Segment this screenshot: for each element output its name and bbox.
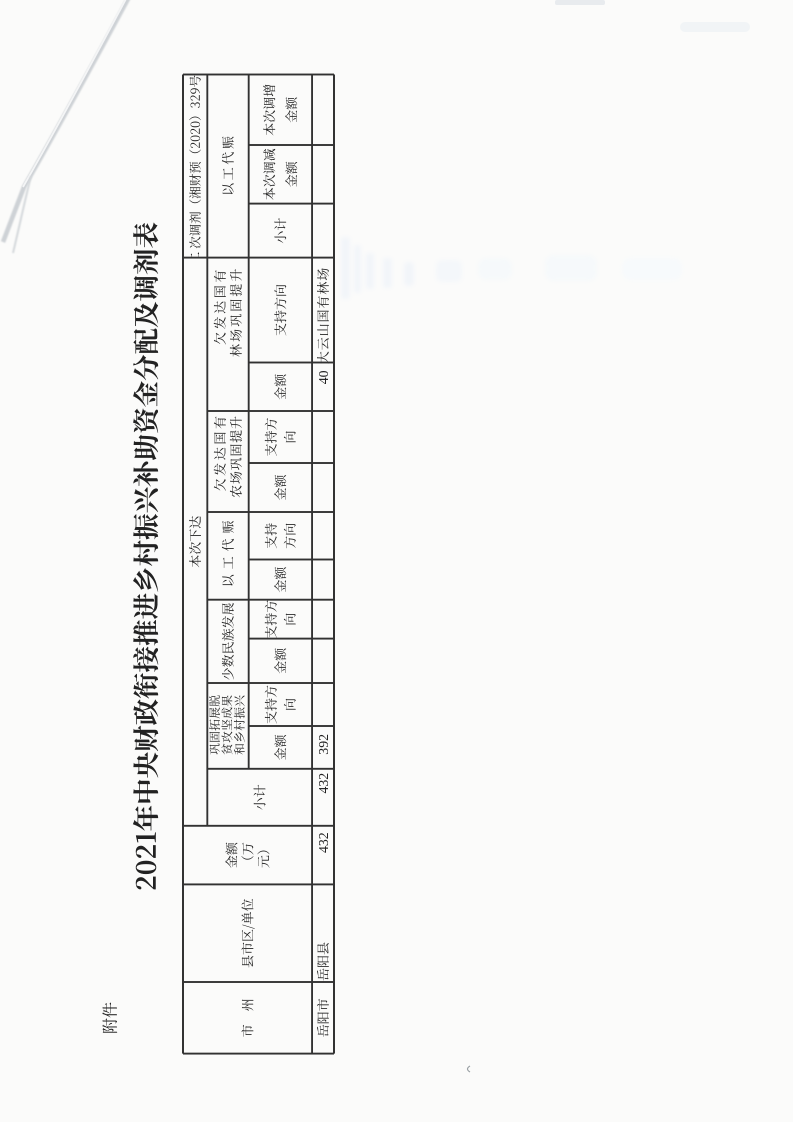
svg-text:40: 40 [316,370,331,384]
svg-text:432: 432 [316,773,331,794]
svg-text:392: 392 [316,734,331,755]
svg-text:432: 432 [316,832,331,853]
